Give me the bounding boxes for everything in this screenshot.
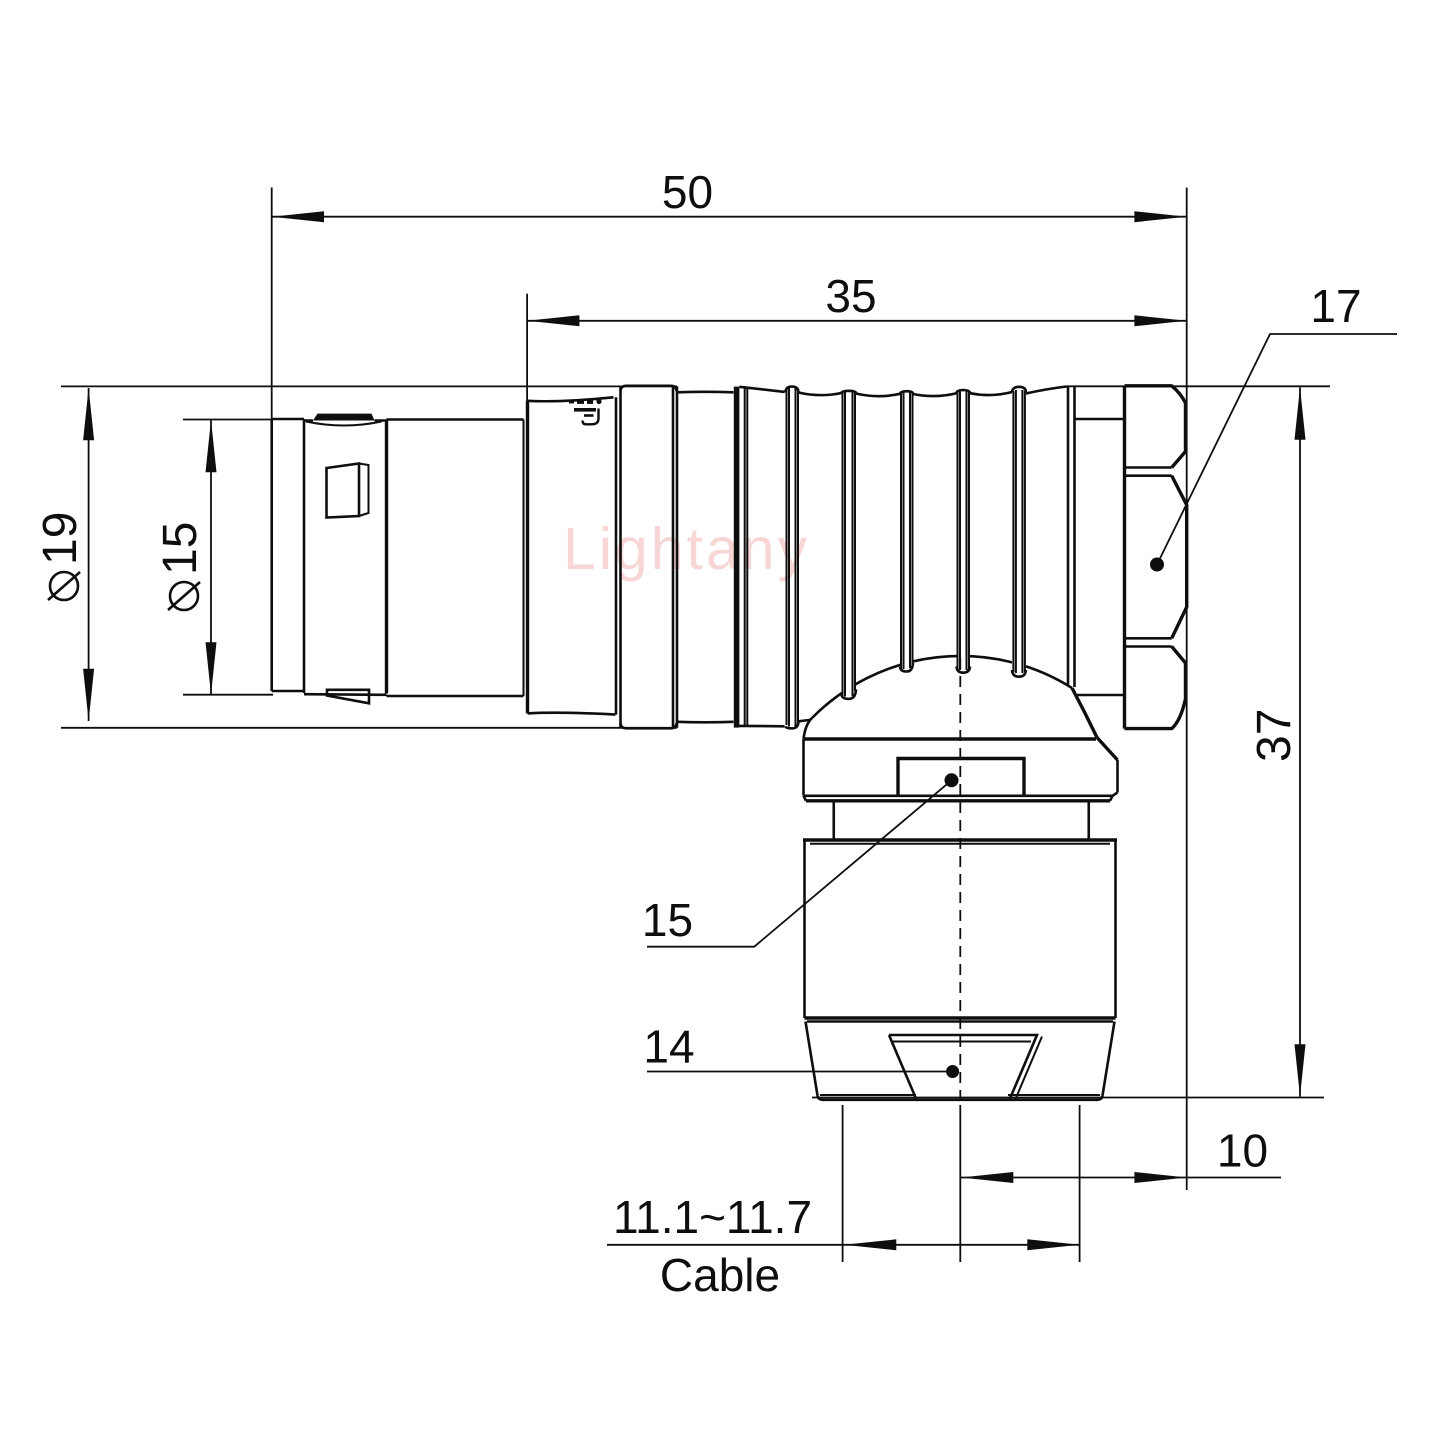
svg-text:15: 15	[642, 894, 693, 946]
svg-text:17: 17	[1310, 280, 1361, 332]
svg-text:15: 15	[154, 522, 207, 575]
svg-text:37: 37	[1248, 709, 1301, 762]
svg-text:19: 19	[34, 512, 87, 565]
svg-text:35: 35	[825, 270, 876, 322]
svg-text:14: 14	[643, 1021, 694, 1073]
svg-text:11.1~11.7: 11.1~11.7	[613, 1191, 812, 1243]
svg-text:10: 10	[1217, 1125, 1268, 1177]
svg-text:50: 50	[662, 166, 713, 218]
svg-text:Lightany: Lightany	[563, 516, 810, 582]
svg-text:Cable: Cable	[660, 1249, 780, 1301]
